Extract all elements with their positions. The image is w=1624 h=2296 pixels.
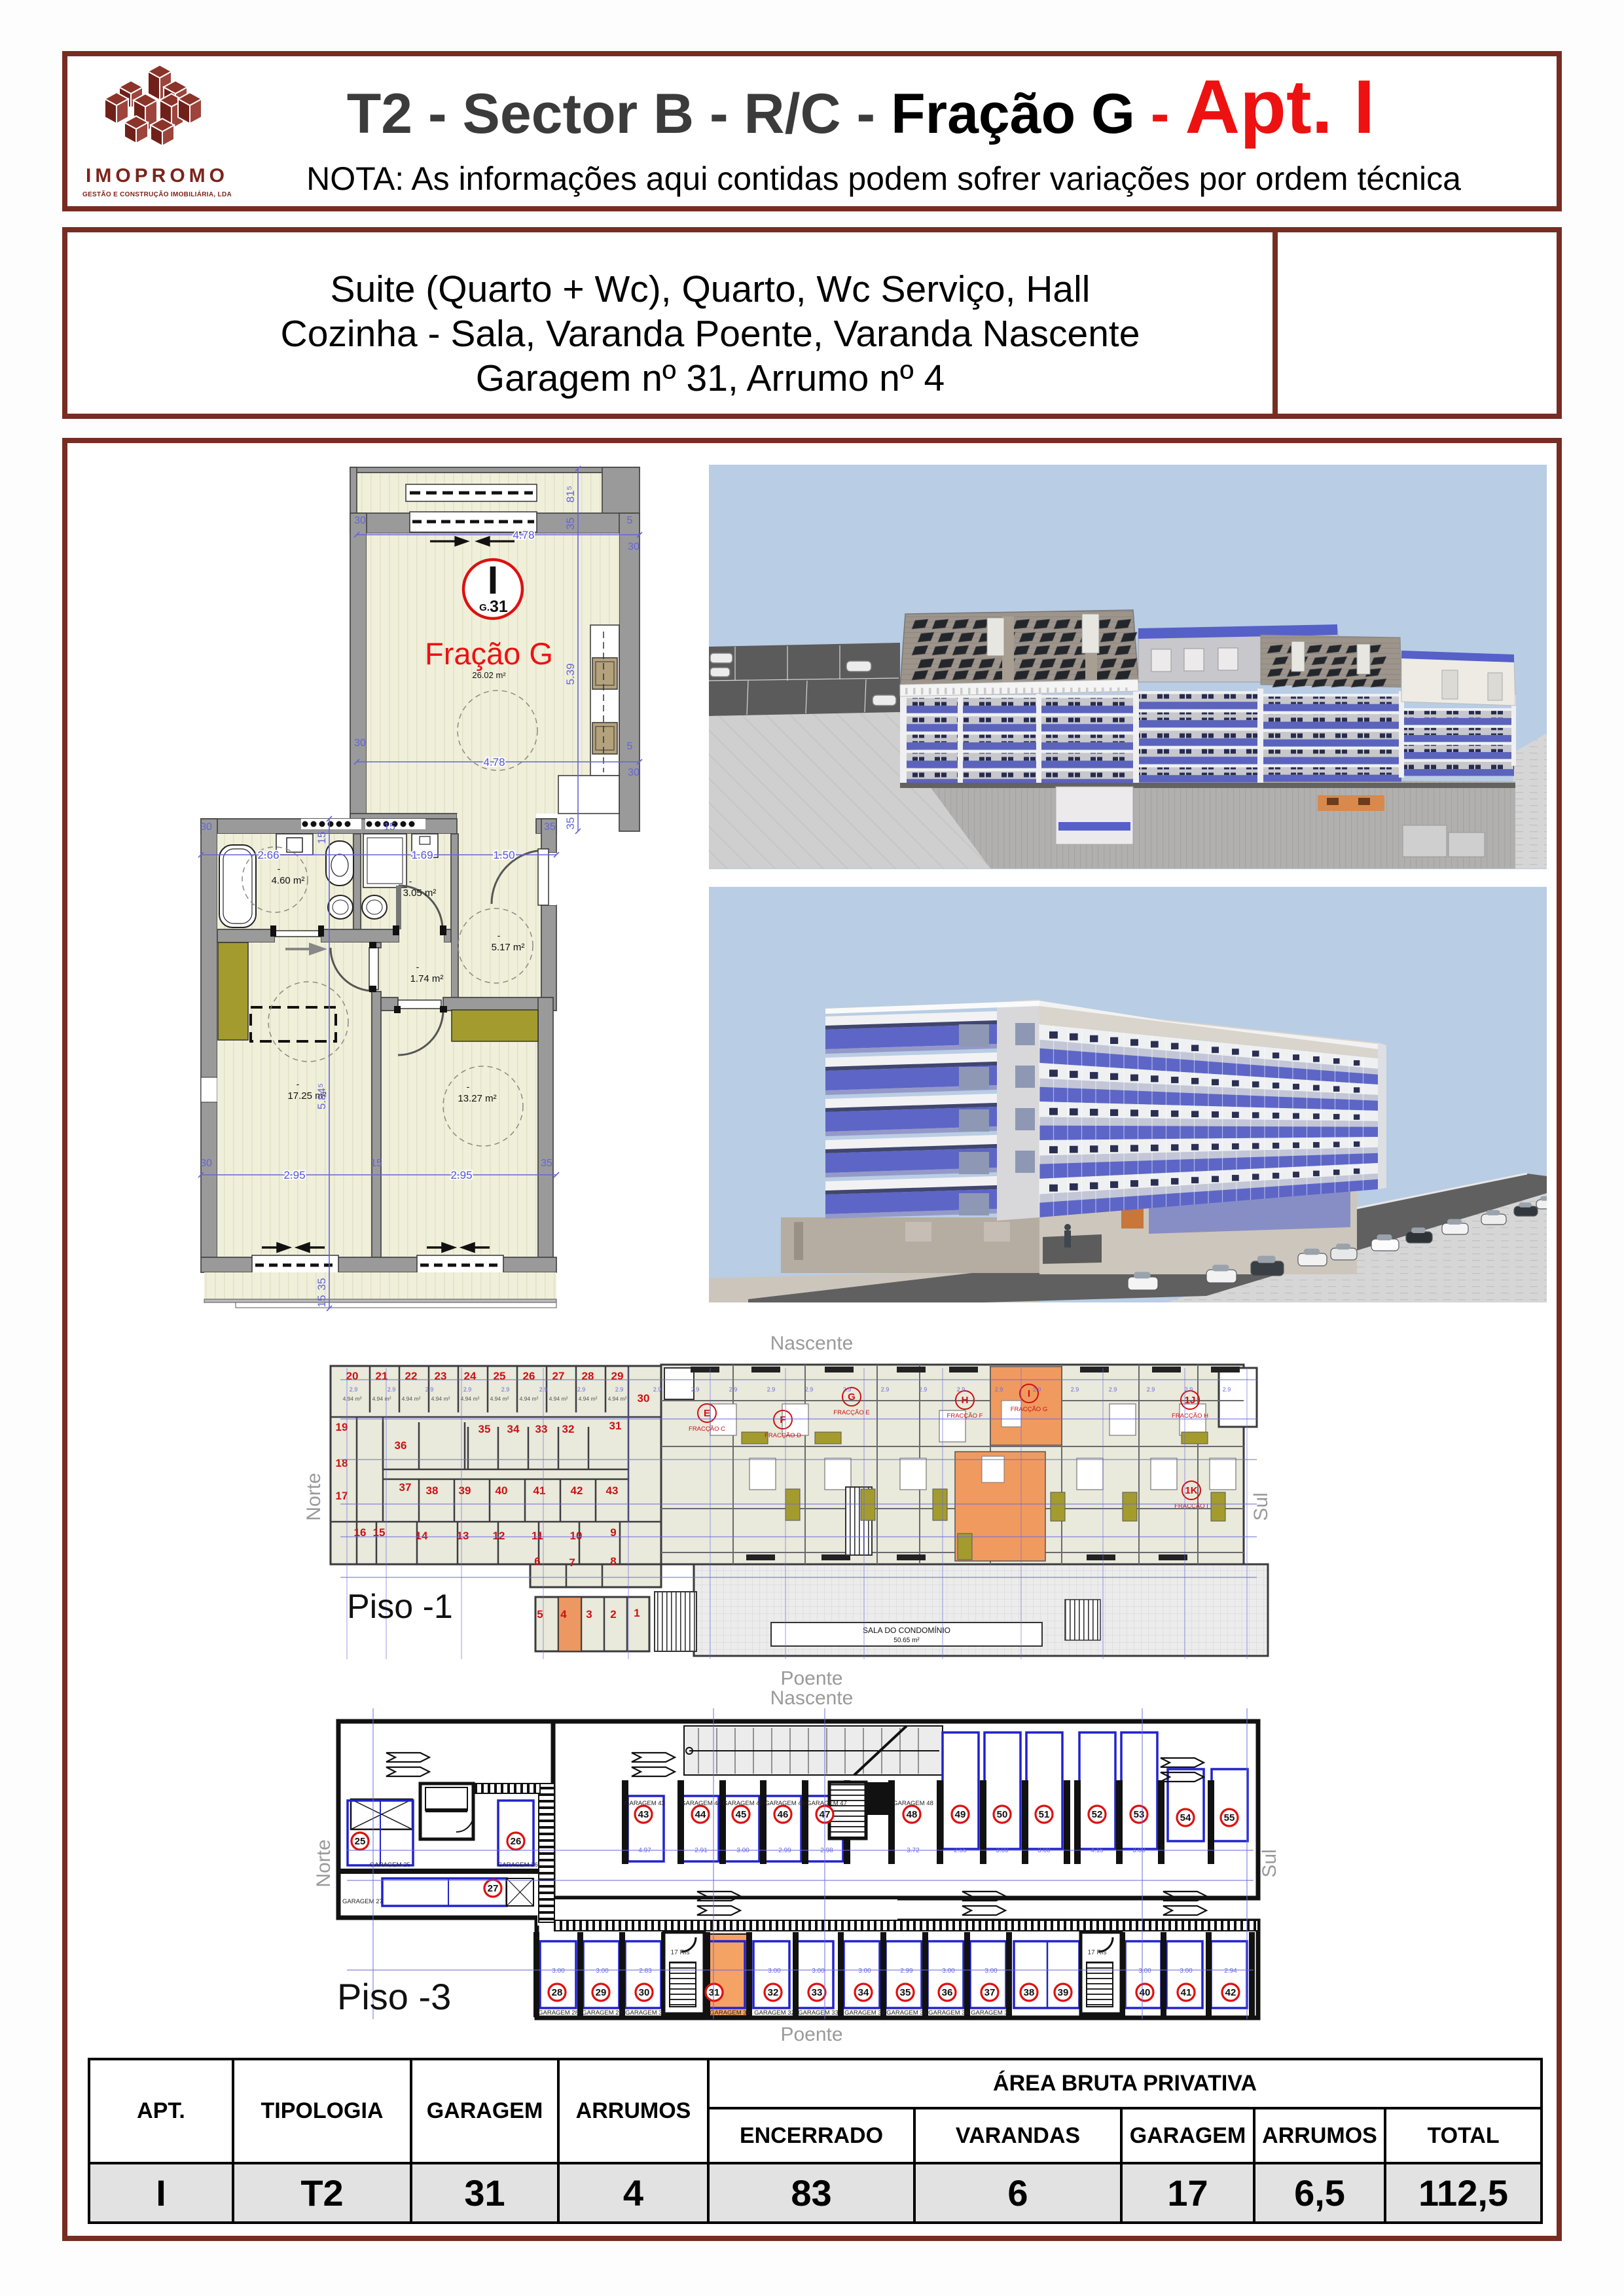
svg-text:7: 7 bbox=[569, 1556, 575, 1569]
svg-text:27: 27 bbox=[552, 1370, 565, 1382]
svg-text:31: 31 bbox=[709, 1987, 720, 1998]
svg-text:Fração G: Fração G bbox=[425, 636, 553, 671]
svg-text:2.9: 2.9 bbox=[767, 1386, 776, 1393]
svg-text:10: 10 bbox=[570, 1530, 583, 1542]
svg-text:5: 5 bbox=[627, 515, 633, 526]
svg-text:24: 24 bbox=[464, 1370, 477, 1382]
svg-text:5.39: 5.39 bbox=[564, 663, 577, 685]
svg-text:GARAGEM 35: GARAGEM 35 bbox=[886, 2009, 927, 2017]
svg-text:4.94 m²: 4.94 m² bbox=[402, 1395, 421, 1402]
svg-text:2.91: 2.91 bbox=[695, 1847, 708, 1854]
svg-text:14: 14 bbox=[416, 1530, 428, 1542]
svg-text:30: 30 bbox=[354, 738, 366, 749]
svg-text:4: 4 bbox=[560, 1608, 567, 1621]
svg-text:4.60 m²: 4.60 m² bbox=[272, 875, 305, 886]
svg-text:3.00: 3.00 bbox=[1180, 1967, 1193, 1975]
svg-text:25: 25 bbox=[494, 1370, 506, 1382]
svg-text:36: 36 bbox=[395, 1439, 407, 1452]
svg-text:1.74 m²: 1.74 m² bbox=[410, 973, 444, 984]
svg-text:52: 52 bbox=[1092, 1809, 1103, 1820]
svg-text:4.94 m²: 4.94 m² bbox=[490, 1395, 509, 1402]
svg-text:GARAGEM 25: GARAGEM 25 bbox=[370, 1861, 410, 1869]
svg-text:G.: G. bbox=[479, 602, 490, 613]
svg-text:I: I bbox=[488, 558, 499, 602]
svg-text:37: 37 bbox=[399, 1481, 412, 1494]
svg-text:3.00: 3.00 bbox=[768, 1967, 781, 1975]
svg-text:2.9: 2.9 bbox=[388, 1386, 396, 1393]
svg-text:18: 18 bbox=[336, 1457, 348, 1469]
svg-text:26: 26 bbox=[511, 1836, 522, 1847]
svg-text:FRACÇÃO H: FRACÇÃO H bbox=[1172, 1412, 1208, 1420]
svg-text:2.9: 2.9 bbox=[729, 1386, 738, 1393]
svg-text:35: 35 bbox=[900, 1987, 911, 1998]
svg-text:4.78: 4.78 bbox=[513, 529, 534, 541]
svg-text:6: 6 bbox=[534, 1555, 540, 1568]
svg-text:-: - bbox=[278, 863, 281, 874]
svg-text:FRACÇÃO D: FRACÇÃO D bbox=[765, 1432, 801, 1439]
svg-text:2.99: 2.99 bbox=[778, 1847, 791, 1854]
svg-text:2.9: 2.9 bbox=[501, 1386, 510, 1393]
svg-text:-: - bbox=[467, 1081, 470, 1092]
svg-text:2.9: 2.9 bbox=[425, 1386, 434, 1393]
svg-text:32: 32 bbox=[562, 1423, 575, 1435]
svg-text:4.94 m²: 4.94 m² bbox=[372, 1395, 391, 1402]
svg-text:48: 48 bbox=[907, 1809, 918, 1820]
svg-text:4.78: 4.78 bbox=[483, 756, 505, 768]
svg-text:3: 3 bbox=[586, 1608, 592, 1621]
svg-text:1: 1 bbox=[634, 1607, 640, 1619]
svg-text:29: 29 bbox=[611, 1370, 624, 1382]
svg-text:32: 32 bbox=[768, 1987, 779, 1998]
svg-text:2: 2 bbox=[610, 1608, 616, 1621]
svg-text:2.99: 2.99 bbox=[900, 1967, 913, 1975]
svg-text:-: - bbox=[409, 876, 412, 886]
svg-text:I: I bbox=[1028, 1388, 1030, 1399]
svg-text:26: 26 bbox=[523, 1370, 535, 1382]
svg-text:39: 39 bbox=[1058, 1987, 1069, 1998]
svg-text:GARAGEM 44: GARAGEM 44 bbox=[681, 1800, 721, 1807]
svg-text:30: 30 bbox=[628, 767, 640, 778]
svg-text:55: 55 bbox=[1224, 1812, 1235, 1823]
svg-text:17 RIs: 17 RIs bbox=[1088, 1949, 1107, 1956]
svg-text:3.00: 3.00 bbox=[552, 1967, 565, 1975]
svg-text:FRACÇÃO F: FRACÇÃO F bbox=[947, 1412, 983, 1420]
svg-text:38: 38 bbox=[1024, 1987, 1035, 1998]
svg-text:4.94 m²: 4.94 m² bbox=[520, 1395, 539, 1402]
svg-text:13.27 m²: 13.27 m² bbox=[458, 1093, 496, 1104]
svg-text:-: - bbox=[416, 961, 420, 972]
svg-text:1.69: 1.69 bbox=[411, 849, 433, 861]
svg-text:2.9: 2.9 bbox=[1109, 1386, 1117, 1393]
svg-text:51: 51 bbox=[1039, 1809, 1050, 1820]
svg-text:81⁵: 81⁵ bbox=[564, 486, 577, 503]
svg-text:3.00: 3.00 bbox=[1132, 1847, 1146, 1854]
svg-text:GARAGEM 26: GARAGEM 26 bbox=[497, 1861, 538, 1869]
svg-text:F: F bbox=[780, 1414, 785, 1426]
svg-text:5: 5 bbox=[537, 1608, 543, 1621]
svg-text:19: 19 bbox=[336, 1421, 348, 1433]
svg-text:23: 23 bbox=[435, 1370, 447, 1382]
svg-text:20: 20 bbox=[346, 1370, 359, 1382]
svg-text:G: G bbox=[848, 1391, 856, 1403]
svg-text:17: 17 bbox=[336, 1490, 348, 1502]
svg-text:41: 41 bbox=[1181, 1987, 1192, 1998]
svg-text:GARAGEM 32: GARAGEM 32 bbox=[754, 2009, 795, 2017]
svg-text:34: 34 bbox=[858, 1987, 869, 1998]
svg-text:2.9: 2.9 bbox=[995, 1386, 1003, 1393]
svg-text:4.94 m²: 4.94 m² bbox=[343, 1395, 362, 1402]
svg-text:2.94: 2.94 bbox=[1224, 1967, 1237, 1975]
svg-text:2.66: 2.66 bbox=[257, 849, 279, 861]
svg-text:15: 15 bbox=[384, 821, 395, 833]
svg-text:50: 50 bbox=[997, 1809, 1008, 1820]
svg-text:2.9: 2.9 bbox=[350, 1386, 358, 1393]
svg-text:35: 35 bbox=[541, 1158, 552, 1169]
svg-text:54: 54 bbox=[1180, 1812, 1191, 1823]
svg-text:GARAGEM 30: GARAGEM 30 bbox=[625, 2009, 666, 2017]
svg-text:GARAGEM 31: GARAGEM 31 bbox=[710, 2009, 750, 2017]
svg-text:37: 37 bbox=[984, 1987, 996, 1998]
svg-text:45: 45 bbox=[736, 1809, 747, 1820]
svg-text:GARAGEM 45: GARAGEM 45 bbox=[723, 1800, 763, 1807]
svg-text:5.84⁵: 5.84⁵ bbox=[316, 1083, 328, 1109]
svg-text:44: 44 bbox=[695, 1809, 706, 1820]
svg-text:2.9: 2.9 bbox=[577, 1386, 586, 1393]
svg-text:FRACÇÃO C: FRACÇÃO C bbox=[689, 1426, 725, 1433]
svg-text:3.00: 3.00 bbox=[1038, 1847, 1051, 1854]
svg-text:4.94 m²: 4.94 m² bbox=[549, 1395, 568, 1402]
svg-text:4.94 m²: 4.94 m² bbox=[579, 1395, 598, 1402]
svg-text:15: 15 bbox=[370, 1158, 382, 1169]
svg-text:35: 35 bbox=[316, 1278, 328, 1291]
svg-text:11: 11 bbox=[532, 1530, 543, 1542]
svg-text:2.95: 2.95 bbox=[450, 1169, 472, 1181]
svg-text:46: 46 bbox=[778, 1809, 789, 1820]
svg-text:34: 34 bbox=[507, 1423, 520, 1435]
svg-text:27: 27 bbox=[488, 1883, 499, 1894]
svg-text:35: 35 bbox=[544, 821, 556, 833]
svg-text:40: 40 bbox=[496, 1484, 508, 1497]
svg-text:36: 36 bbox=[942, 1987, 953, 1998]
svg-text:33: 33 bbox=[535, 1423, 548, 1435]
svg-text:3.00: 3.00 bbox=[1138, 1967, 1151, 1975]
svg-text:30: 30 bbox=[200, 1158, 212, 1169]
svg-text:2.9: 2.9 bbox=[539, 1386, 548, 1393]
svg-text:2.9: 2.9 bbox=[919, 1386, 928, 1393]
svg-text:43: 43 bbox=[606, 1484, 619, 1497]
svg-text:4.94 m²: 4.94 m² bbox=[608, 1395, 627, 1402]
svg-text:33: 33 bbox=[812, 1987, 823, 1998]
svg-text:2.9: 2.9 bbox=[843, 1386, 852, 1393]
svg-text:GARAGEM 27: GARAGEM 27 bbox=[342, 1898, 383, 1905]
svg-text:30: 30 bbox=[200, 821, 212, 833]
svg-text:42: 42 bbox=[571, 1484, 583, 1497]
svg-text:50.65 m²: 50.65 m² bbox=[893, 1637, 920, 1644]
svg-text:39: 39 bbox=[459, 1484, 471, 1497]
svg-text:8: 8 bbox=[610, 1555, 616, 1568]
svg-text:4.15: 4.15 bbox=[1091, 1847, 1104, 1854]
svg-text:31: 31 bbox=[490, 598, 508, 616]
svg-text:30: 30 bbox=[639, 1987, 650, 1998]
svg-text:1K: 1K bbox=[1185, 1485, 1197, 1496]
svg-text:E: E bbox=[704, 1408, 710, 1419]
svg-text:GARAGEM 47: GARAGEM 47 bbox=[806, 1800, 847, 1807]
svg-text:2.83: 2.83 bbox=[639, 1967, 652, 1975]
svg-text:5.17 m²: 5.17 m² bbox=[492, 942, 525, 953]
svg-text:2.9: 2.9 bbox=[1147, 1386, 1155, 1393]
svg-text:2.9: 2.9 bbox=[691, 1386, 700, 1393]
svg-text:38: 38 bbox=[426, 1484, 439, 1497]
svg-text:53: 53 bbox=[1134, 1809, 1145, 1820]
svg-text:-: - bbox=[297, 1079, 300, 1089]
svg-text:GARAGEM 37: GARAGEM 37 bbox=[971, 2009, 1011, 2017]
svg-text:H: H bbox=[962, 1395, 969, 1406]
svg-text:31: 31 bbox=[609, 1420, 622, 1432]
svg-text:2.9: 2.9 bbox=[1185, 1386, 1193, 1393]
svg-text:3.00: 3.00 bbox=[736, 1847, 749, 1854]
svg-text:GARAGEM 36: GARAGEM 36 bbox=[928, 2009, 969, 2017]
svg-text:35: 35 bbox=[478, 1423, 491, 1435]
svg-text:41: 41 bbox=[533, 1484, 546, 1497]
svg-text:GARAGEM 43: GARAGEM 43 bbox=[624, 1800, 665, 1807]
svg-text:GARAGEM 33: GARAGEM 33 bbox=[798, 2009, 839, 2017]
svg-text:GARAGEM 28: GARAGEM 28 bbox=[538, 2009, 579, 2017]
svg-text:26.02 m²: 26.02 m² bbox=[472, 670, 506, 680]
svg-text:3.00: 3.00 bbox=[596, 1967, 609, 1975]
svg-text:2.9: 2.9 bbox=[653, 1386, 662, 1393]
svg-text:2.9: 2.9 bbox=[957, 1386, 965, 1393]
svg-text:25: 25 bbox=[355, 1836, 366, 1847]
svg-text:30: 30 bbox=[638, 1392, 650, 1405]
svg-text:42: 42 bbox=[1225, 1987, 1236, 1998]
svg-text:28: 28 bbox=[552, 1987, 563, 1998]
svg-text:15: 15 bbox=[316, 832, 328, 844]
svg-text:43: 43 bbox=[638, 1809, 649, 1820]
svg-text:SALA DO CONDOMÍNIO: SALA DO CONDOMÍNIO bbox=[863, 1625, 950, 1635]
svg-text:3.00: 3.00 bbox=[858, 1967, 871, 1975]
svg-text:1J: 1J bbox=[1185, 1395, 1196, 1406]
svg-text:40: 40 bbox=[1140, 1987, 1151, 1998]
svg-text:29: 29 bbox=[596, 1987, 607, 1998]
svg-text:2.98: 2.98 bbox=[820, 1847, 833, 1854]
svg-text:3.00: 3.00 bbox=[984, 1967, 998, 1975]
svg-text:2.9: 2.9 bbox=[463, 1386, 472, 1393]
svg-text:4.97: 4.97 bbox=[638, 1847, 651, 1854]
svg-text:28: 28 bbox=[582, 1370, 594, 1382]
svg-text:3.72: 3.72 bbox=[907, 1847, 920, 1854]
svg-text:3.05 m²: 3.05 m² bbox=[403, 888, 437, 899]
svg-text:4.94 m²: 4.94 m² bbox=[461, 1395, 480, 1402]
svg-text:3.00: 3.00 bbox=[812, 1967, 825, 1975]
svg-text:3.00: 3.00 bbox=[942, 1967, 955, 1975]
svg-text:30: 30 bbox=[628, 541, 640, 552]
svg-text:22: 22 bbox=[405, 1370, 418, 1382]
svg-text:4.94 m²: 4.94 m² bbox=[431, 1395, 450, 1402]
svg-text:2.9: 2.9 bbox=[881, 1386, 890, 1393]
svg-text:1.50: 1.50 bbox=[493, 849, 514, 861]
svg-text:GARAGEM 29: GARAGEM 29 bbox=[582, 2009, 623, 2017]
svg-text:GARAGEM 46: GARAGEM 46 bbox=[765, 1800, 805, 1807]
svg-text:13: 13 bbox=[457, 1530, 469, 1542]
svg-text:49: 49 bbox=[955, 1809, 966, 1820]
svg-text:17 RIs: 17 RIs bbox=[671, 1949, 690, 1956]
svg-text:15: 15 bbox=[316, 1295, 328, 1308]
svg-text:GARAGEM 34: GARAGEM 34 bbox=[844, 2009, 885, 2017]
svg-text:FRACÇÃO G: FRACÇÃO G bbox=[1011, 1406, 1047, 1413]
svg-text:30: 30 bbox=[354, 515, 366, 526]
svg-text:2.9: 2.9 bbox=[1071, 1386, 1079, 1393]
svg-text:2.95: 2.95 bbox=[283, 1169, 305, 1181]
svg-text:-: - bbox=[497, 930, 501, 941]
svg-text:2.9: 2.9 bbox=[1223, 1386, 1231, 1393]
svg-text:12: 12 bbox=[493, 1530, 505, 1542]
svg-text:2.9: 2.9 bbox=[615, 1386, 624, 1393]
svg-text:35: 35 bbox=[564, 518, 577, 530]
svg-text:2.55: 2.55 bbox=[954, 1847, 967, 1854]
svg-text:3.00: 3.00 bbox=[996, 1847, 1009, 1854]
svg-text:GARAGEM 48: GARAGEM 48 bbox=[893, 1800, 933, 1807]
svg-text:5: 5 bbox=[627, 741, 633, 752]
svg-text:35: 35 bbox=[564, 817, 577, 830]
svg-text:2.9: 2.9 bbox=[805, 1386, 814, 1393]
svg-text:2.9: 2.9 bbox=[1033, 1386, 1041, 1393]
